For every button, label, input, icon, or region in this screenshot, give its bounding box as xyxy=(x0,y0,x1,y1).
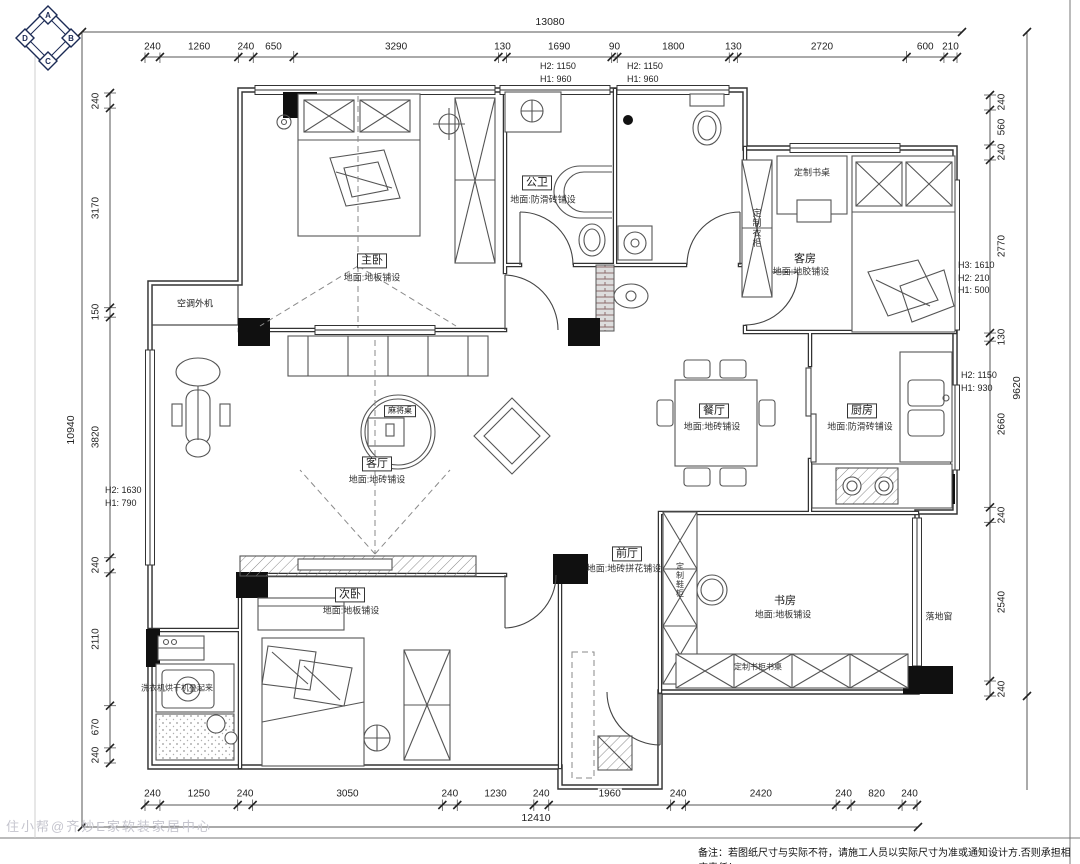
compass-c: C xyxy=(45,57,51,66)
floorplan-sheet: A B C D xyxy=(0,0,1080,864)
door-kitchen-sliding xyxy=(806,368,816,462)
watermark: 住小帮@齐妙E家软装家居中心 xyxy=(6,816,212,835)
window-top-bath2 xyxy=(617,86,729,95)
ac-platform xyxy=(152,285,238,325)
guest-bed xyxy=(852,156,955,332)
tv-cabinet xyxy=(240,556,476,576)
floorplan-drawing: A B C D xyxy=(0,0,1080,864)
guest-desk xyxy=(777,156,847,222)
kitchen-counter-south xyxy=(812,464,952,508)
living-sofa xyxy=(288,336,488,376)
note-text: 备注：若图纸尺寸与实际不符，请施工人员以实际尺寸为准或通知设计方.否则承担相应责… xyxy=(698,844,1076,864)
window-master-south xyxy=(315,326,435,335)
washer-bath2 xyxy=(618,226,652,260)
compass-b: B xyxy=(68,34,74,43)
bedroom2-dresser xyxy=(258,598,344,630)
study-stool xyxy=(697,575,727,605)
door-bath1 xyxy=(520,212,573,265)
window-study-floor xyxy=(913,518,922,666)
guest-wardrobe xyxy=(742,160,772,297)
door-master xyxy=(505,275,558,330)
compass-d: D xyxy=(22,34,28,43)
bathtub xyxy=(554,166,612,218)
bath-vanity xyxy=(505,92,561,132)
kitchen-counter-east xyxy=(900,352,952,462)
bedroom2-wardrobe xyxy=(404,650,450,760)
toilet-bath1 xyxy=(579,224,605,256)
foyer-hatch-square xyxy=(598,736,632,770)
compass-rose: A B C D xyxy=(16,6,80,70)
mahjong-table xyxy=(361,395,435,469)
laundry-stack xyxy=(156,636,237,760)
floor-drain xyxy=(623,115,633,125)
bedroom2-bed xyxy=(262,638,364,766)
window-top-guest xyxy=(790,144,900,153)
pedestal-sink xyxy=(614,284,648,308)
dining-table xyxy=(657,360,775,486)
exercise-bike xyxy=(172,358,230,457)
compass-a: A xyxy=(45,11,51,20)
door-bedroom2 xyxy=(505,575,556,628)
toilet-bath2 xyxy=(690,94,724,145)
study-cabinet xyxy=(676,654,908,688)
master-bed xyxy=(298,94,420,236)
master-wardrobe xyxy=(455,98,495,263)
furniture xyxy=(156,92,955,770)
armchair xyxy=(474,398,550,474)
window-left-living xyxy=(146,350,155,565)
door-bath2 xyxy=(687,212,740,265)
ceiling-fan xyxy=(364,725,390,751)
